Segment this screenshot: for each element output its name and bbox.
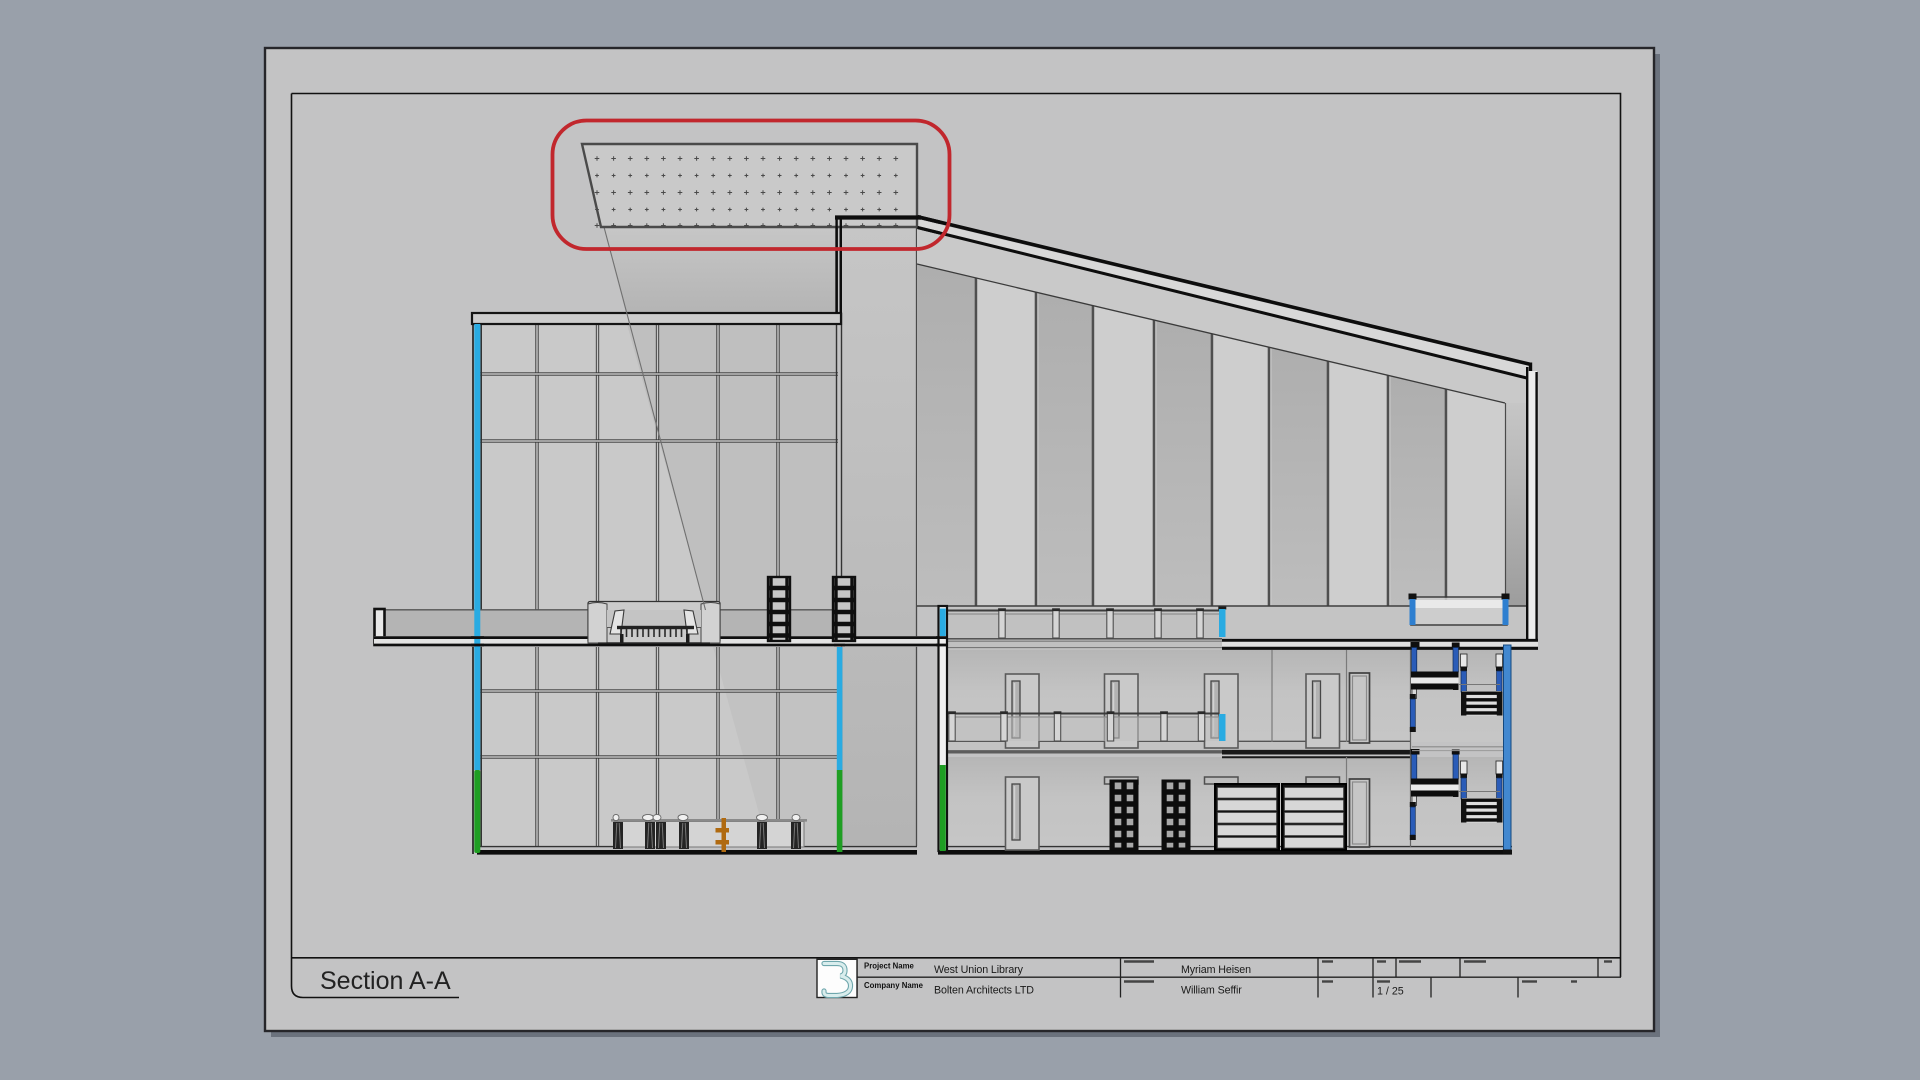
svg-text:Project Name: Project Name: [864, 962, 914, 971]
svg-text:Section A-A: Section A-A: [320, 967, 451, 995]
svg-text:Company Name: Company Name: [864, 981, 924, 990]
svg-text:West Union Library: West Union Library: [934, 964, 1024, 976]
svg-text:William Seffir: William Seffir: [1181, 985, 1242, 997]
svg-text:1 / 25: 1 / 25: [1377, 986, 1404, 998]
svg-text:Bolten Architects LTD: Bolten Architects LTD: [934, 985, 1034, 997]
svg-text:Myriam Heisen: Myriam Heisen: [1181, 964, 1251, 976]
